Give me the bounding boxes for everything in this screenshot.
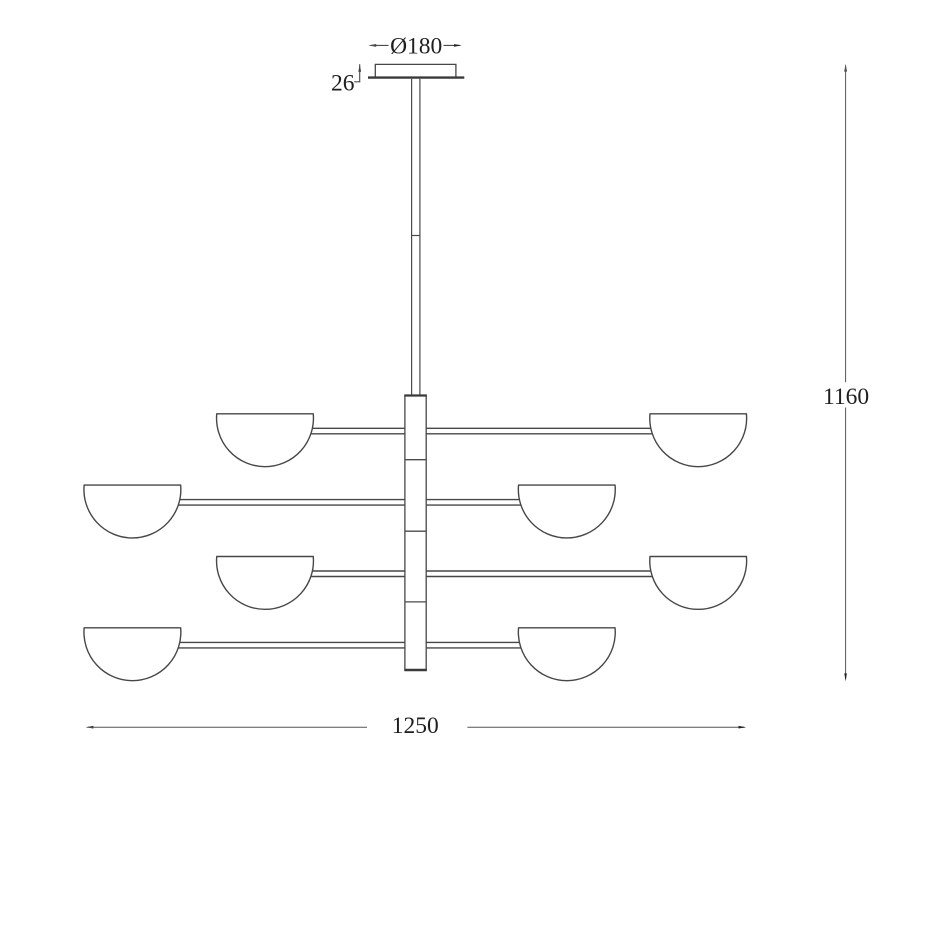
svg-text:Ø180: Ø180 — [390, 34, 442, 60]
svg-text:26: 26 — [331, 71, 355, 97]
svg-text:1160: 1160 — [823, 384, 869, 410]
svg-text:1250: 1250 — [392, 713, 439, 739]
